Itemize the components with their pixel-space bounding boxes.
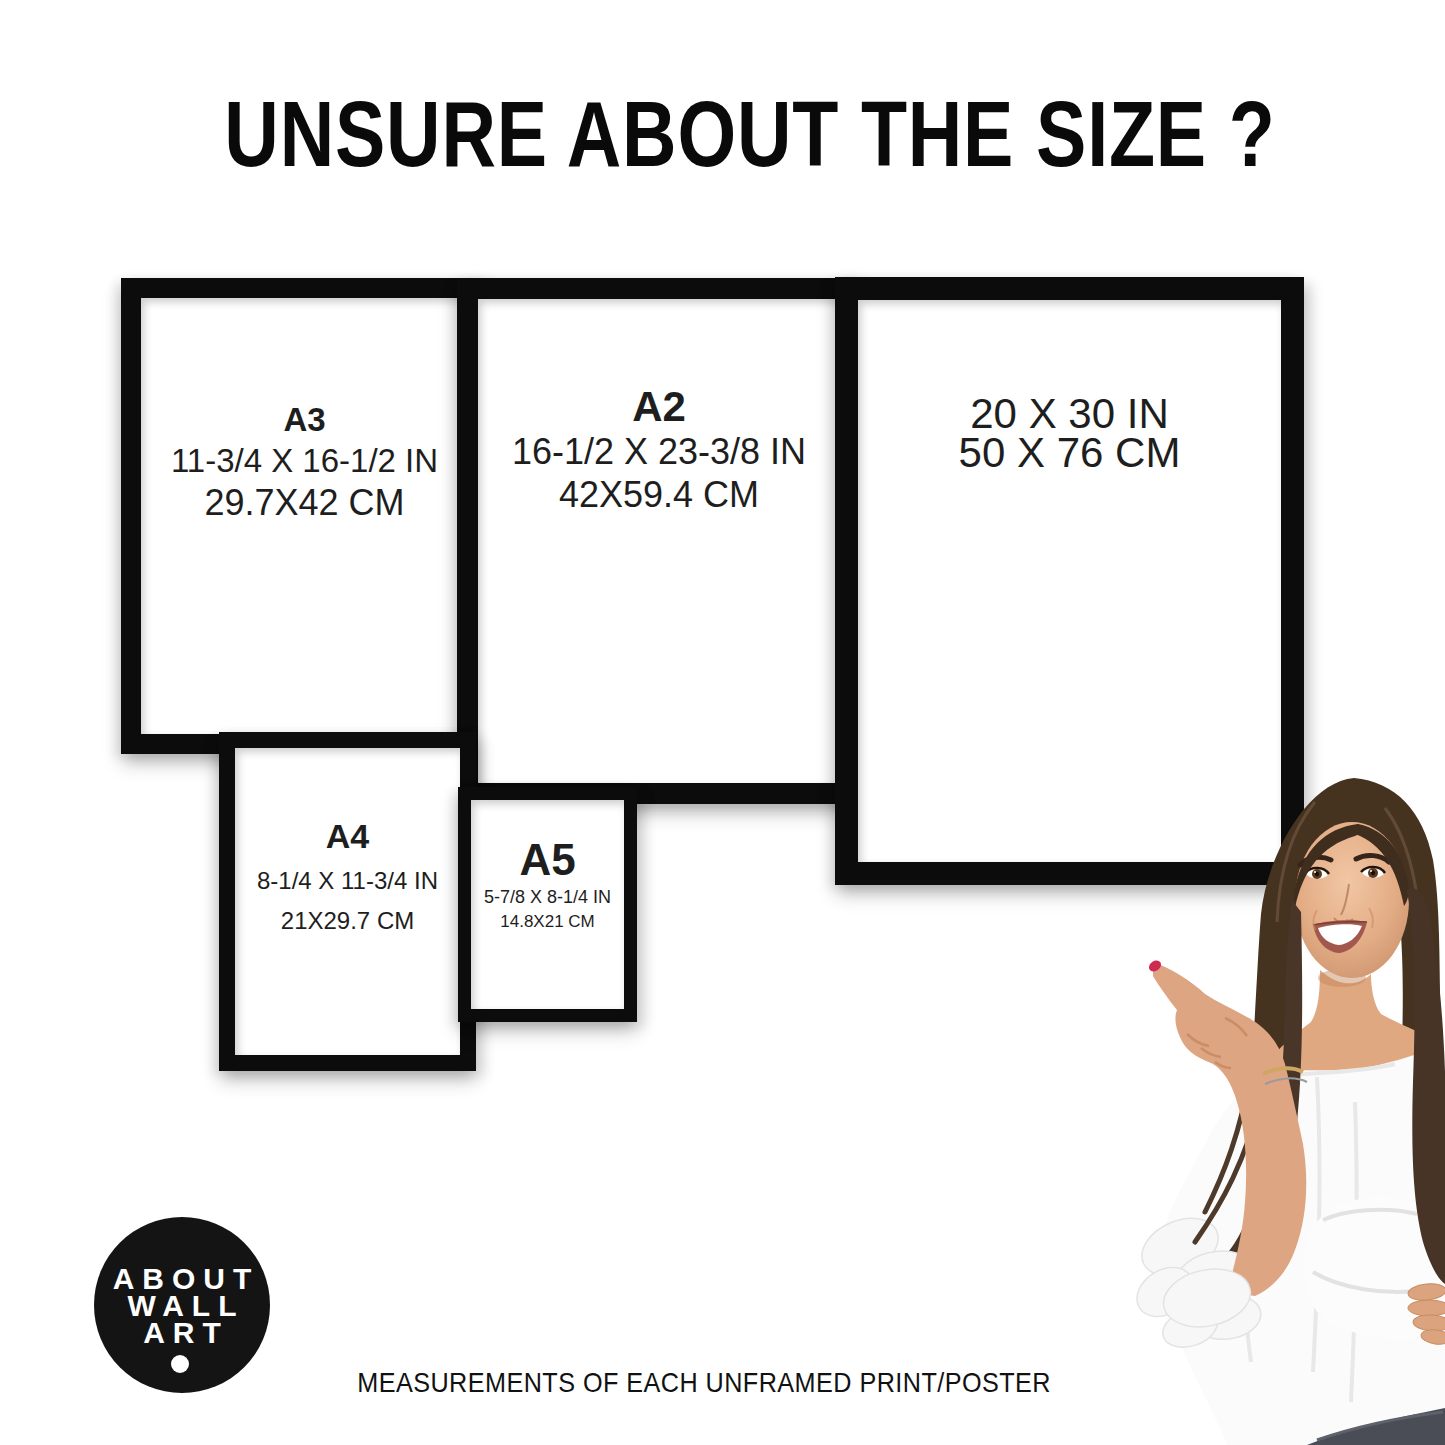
size-frame-a3: A3 11-3/4 X 16-1/2 IN 29.7X42 CM [121, 278, 488, 754]
logo-line-wall: WALL [94, 1292, 270, 1319]
frame-text-a2: A2 16-1/2 X 23-3/8 IN 42X59.4 CM [478, 384, 840, 516]
size-inches: 16-1/2 X 23-3/8 IN [478, 430, 840, 473]
size-inches: 20 X 30 IN [858, 394, 1281, 433]
size-frame-a4: A4 8-1/4 X 11-3/4 IN 21X29.7 CM [219, 732, 476, 1071]
frame-text-a4: A4 8-1/4 X 11-3/4 IN 21X29.7 CM [235, 816, 460, 936]
page-title: UNSURE ABOUT THE SIZE ? [180, 84, 1320, 184]
frame-text-a3: A3 11-3/4 X 16-1/2 IN 29.7X42 CM [141, 400, 468, 524]
frame-text-20x30: 20 X 30 IN 50 X 76 CM [858, 394, 1281, 472]
size-guide-infographic: UNSURE ABOUT THE SIZE ? A3 11-3/4 X 16-1… [0, 0, 1445, 1445]
size-frame-a5: A5 5-7/8 X 8-1/4 IN 14.8X21 CM [458, 787, 637, 1022]
woman-photo [1055, 772, 1445, 1445]
size-label: A5 [471, 836, 624, 884]
size-cm: 42X59.4 CM [478, 473, 840, 516]
size-cm: 14.8X21 CM [471, 910, 624, 934]
size-cm: 21X29.7 CM [235, 906, 460, 936]
size-frame-a2: A2 16-1/2 X 23-3/8 IN 42X59.4 CM [457, 278, 861, 804]
logo-line-art: ART [94, 1319, 270, 1346]
size-inches: 8-1/4 X 11-3/4 IN [235, 856, 460, 906]
logo-dot [171, 1355, 189, 1373]
brand-logo-text: ABOUT WALL ART [94, 1265, 270, 1346]
frame-text-a5: A5 5-7/8 X 8-1/4 IN 14.8X21 CM [471, 836, 624, 934]
size-label: A3 [141, 400, 468, 440]
size-label: A4 [235, 816, 460, 856]
size-cm: 29.7X42 CM [141, 482, 468, 524]
size-inches: 11-3/4 X 16-1/2 IN [141, 440, 468, 482]
size-inches: 5-7/8 X 8-1/4 IN [471, 884, 624, 910]
brand-logo: ABOUT WALL ART [94, 1217, 270, 1393]
size-label: A2 [478, 384, 840, 430]
caption: MEASUREMENTS OF EACH UNFRAMED PRINT/POST… [357, 1368, 974, 1398]
logo-line-about: ABOUT [94, 1265, 270, 1292]
size-cm: 50 X 76 CM [858, 433, 1281, 472]
